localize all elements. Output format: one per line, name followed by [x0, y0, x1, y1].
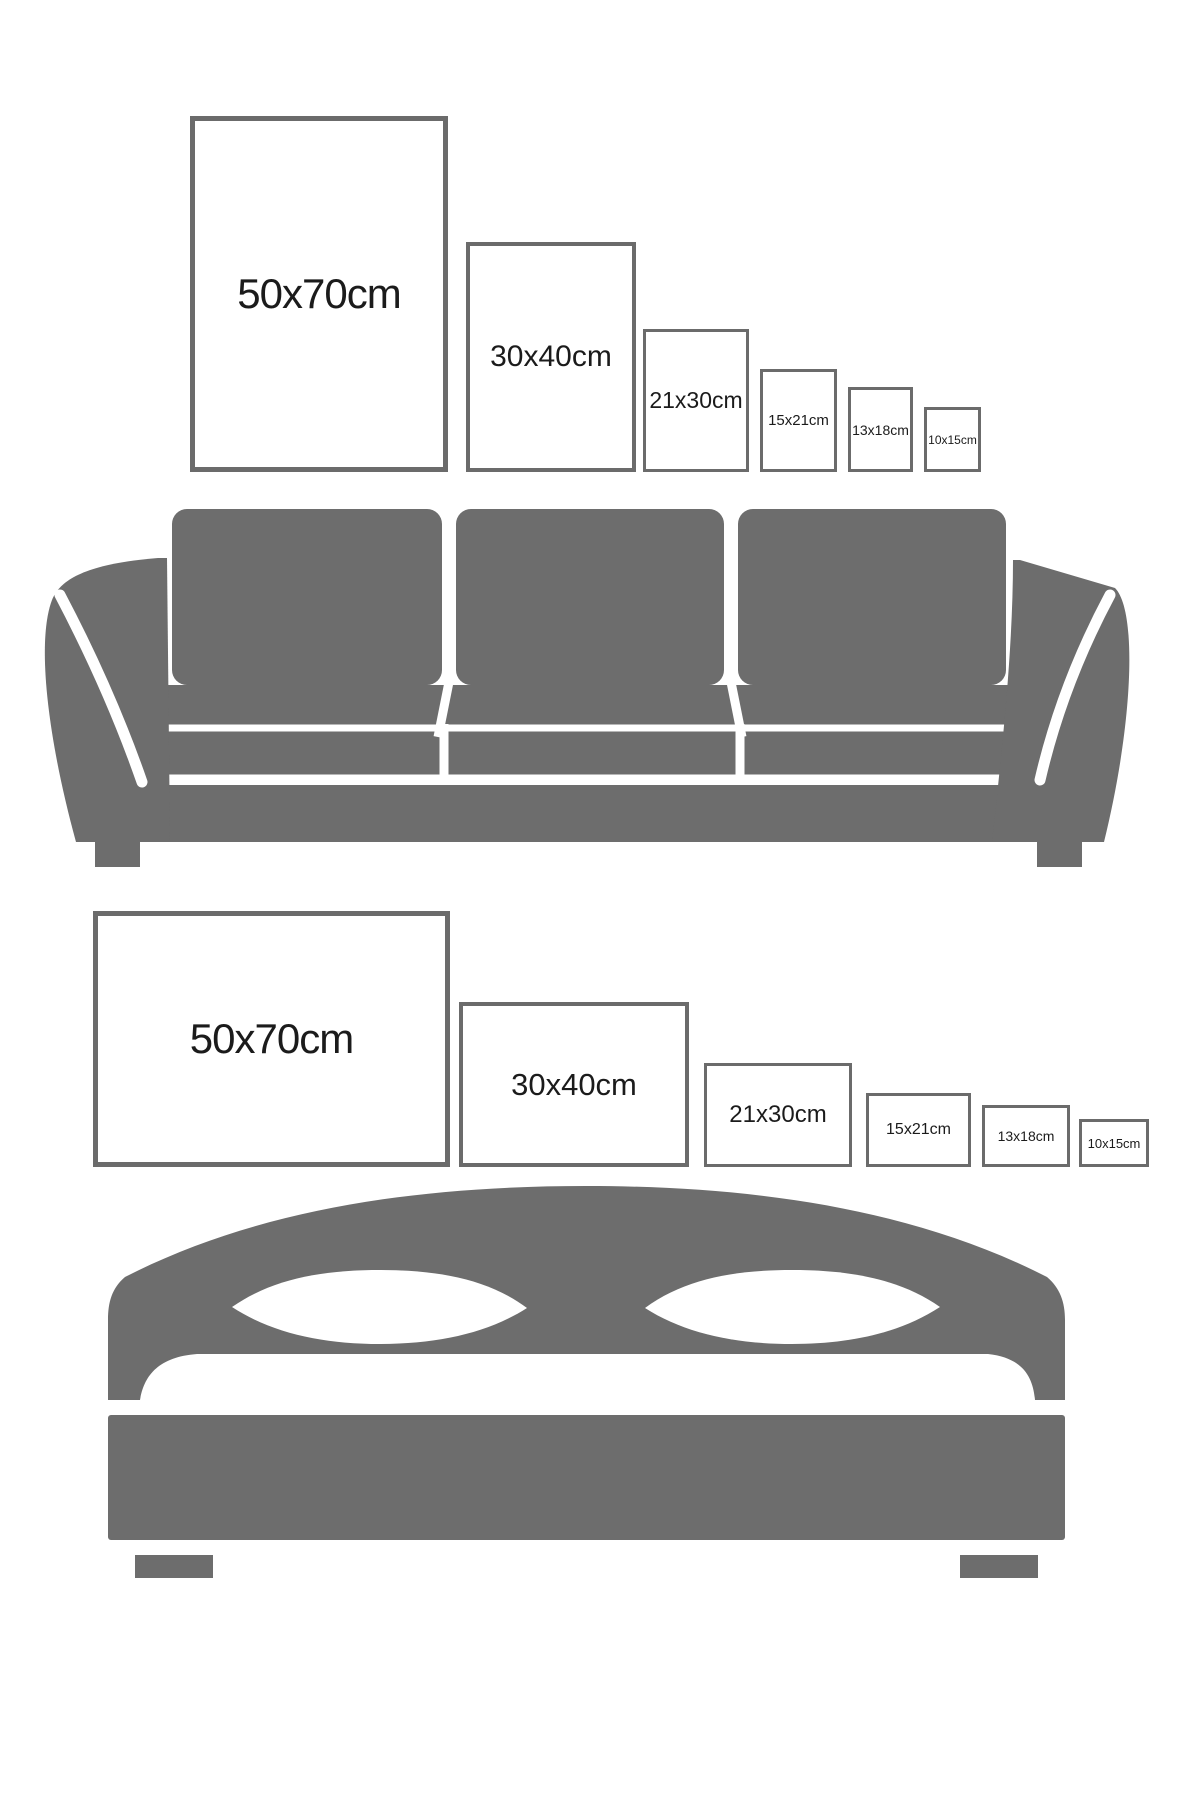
size-label: 13x18cm — [998, 1128, 1055, 1144]
size-frame-30x40-landscape: 30x40cm — [459, 1002, 689, 1167]
sofa-illustration — [40, 500, 1140, 870]
size-frame-30x40-portrait: 30x40cm — [466, 242, 636, 472]
size-label: 15x21cm — [768, 412, 829, 429]
size-label: 10x15cm — [928, 433, 977, 447]
size-frame-10x15-portrait: 10x15cm — [924, 407, 981, 472]
size-label: 21x30cm — [729, 1101, 826, 1129]
size-frame-15x21-portrait: 15x21cm — [760, 369, 837, 472]
size-label: 30x40cm — [490, 340, 612, 374]
size-label: 50x70cm — [237, 270, 400, 318]
size-frame-15x21-landscape: 15x21cm — [866, 1093, 971, 1167]
size-label: 15x21cm — [886, 1121, 951, 1139]
size-label: 50x70cm — [190, 1015, 353, 1063]
size-frame-50x70-landscape: 50x70cm — [93, 911, 450, 1167]
size-frame-13x18-portrait: 13x18cm — [848, 387, 913, 472]
size-frame-50x70-portrait: 50x70cm — [190, 116, 448, 472]
bed-illustration — [100, 1180, 1075, 1590]
size-guide-page: 50x70cm 30x40cm 21x30cm 15x21cm 13x18cm … — [0, 0, 1200, 1800]
size-label: 21x30cm — [649, 387, 742, 414]
size-label: 13x18cm — [852, 422, 909, 438]
size-label: 10x15cm — [1088, 1136, 1141, 1151]
size-frame-13x18-landscape: 13x18cm — [982, 1105, 1070, 1167]
size-frame-21x30-landscape: 21x30cm — [704, 1063, 852, 1167]
size-label: 30x40cm — [511, 1067, 637, 1103]
size-frame-21x30-portrait: 21x30cm — [643, 329, 749, 472]
size-frame-10x15-landscape: 10x15cm — [1079, 1119, 1149, 1167]
